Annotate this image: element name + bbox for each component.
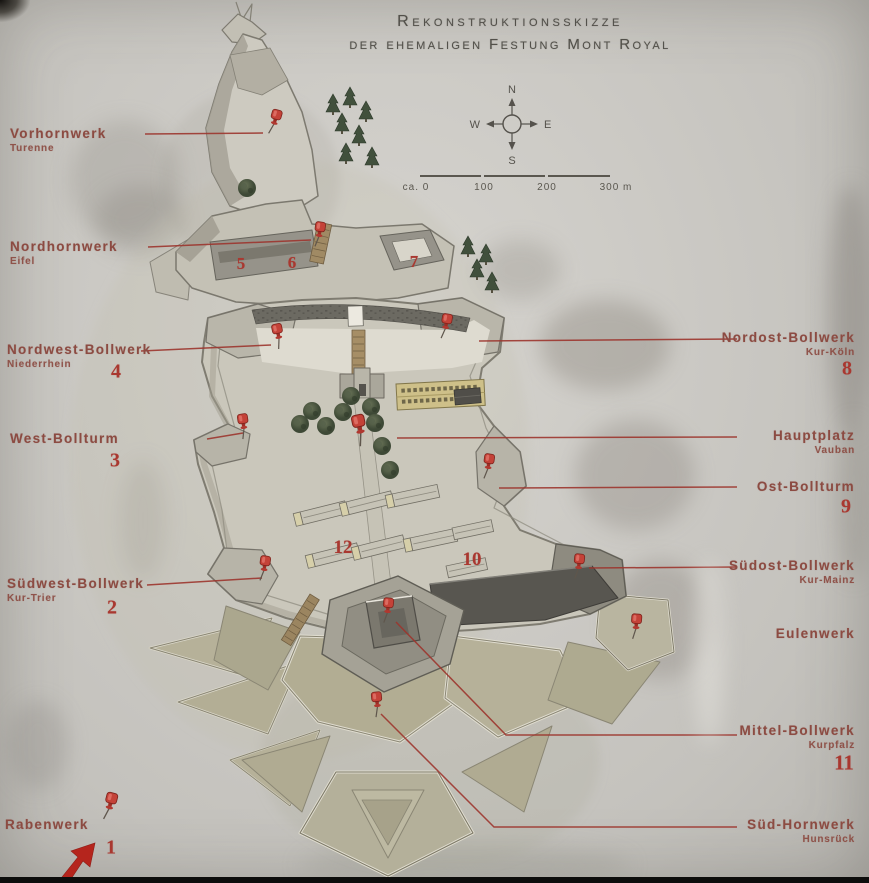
map-number-2: 2	[107, 597, 117, 620]
map-number-3: 3	[110, 450, 120, 473]
leader-line	[499, 487, 737, 488]
label-subtext: Kur-Trier	[7, 593, 144, 606]
label-text: Rabenwerk	[5, 817, 89, 834]
map-number-10: 10	[463, 549, 482, 571]
map-label-nordost-bollwerk: Nordost-BollwerkKur-Köln	[722, 330, 855, 359]
map-label-s-dwest-bollwerk: Südwest-BollwerkKur-Trier	[7, 576, 144, 605]
map-title-line1: Rekonstruktionsskizze	[320, 13, 700, 31]
label-subtext: Turenne	[10, 143, 107, 156]
map-title-line2: der ehemaligen Festung Mont Royal	[320, 36, 700, 53]
map-number-4: 4	[111, 361, 121, 384]
label-subtext: Vauban	[773, 445, 855, 458]
label-subtext: Niederrhein	[7, 359, 151, 372]
map-label-rabenwerk: Rabenwerk	[5, 817, 89, 834]
leader-line	[145, 133, 263, 134]
map-label-nordhornwerk: NordhornwerkEifel	[10, 239, 118, 268]
scale-bar: ca. 0 100 200 300 m	[403, 176, 633, 193]
fortress-map-sign: N S W E ca. 0 100 200 300 m Rekonstrukti…	[0, 0, 869, 883]
photo-glare-band	[694, 560, 724, 745]
map-label-s-dost-bollwerk: Südost-BollwerkKur-Mainz	[729, 558, 855, 587]
label-text: Mittel-Bollwerk	[739, 723, 855, 740]
scale-label-0: ca. 0	[403, 182, 430, 193]
compass-w: W	[470, 119, 481, 131]
leader-line	[479, 339, 737, 341]
scale-label-200: 200	[537, 182, 557, 193]
label-text: Nordhornwerk	[10, 239, 118, 256]
map-label-nordwest-bollwerk: Nordwest-BollwerkNiederrhein	[7, 342, 151, 371]
map-number-5: 5	[237, 254, 246, 274]
map-label-mittel-bollwerk: Mittel-BollwerkKurpfalz	[739, 723, 855, 752]
sign-frame-edge	[0, 877, 869, 883]
map-label-west-bollturm: West-Bollturm	[10, 431, 119, 448]
label-text: Südost-Bollwerk	[729, 558, 855, 575]
label-text: Vorhornwerk	[10, 126, 107, 143]
map-number-9: 9	[841, 496, 851, 519]
location-pin	[101, 792, 118, 821]
label-subtext: Kur-Köln	[722, 347, 855, 360]
map-label-eulenwerk: Eulenwerk	[776, 626, 855, 643]
label-text: West-Bollturm	[10, 431, 119, 448]
scale-label-300: 300 m	[600, 182, 633, 193]
photo-corner-shadow	[0, 0, 30, 22]
compass-e: E	[544, 119, 551, 131]
map-label-hauptplatz: HauptplatzVauban	[773, 428, 855, 457]
label-text: Südwest-Bollwerk	[7, 576, 144, 593]
label-text: Hauptplatz	[773, 428, 855, 445]
map-number-8: 8	[842, 358, 852, 381]
compass-s: S	[508, 155, 515, 167]
label-subtext: Kur-Mainz	[729, 575, 855, 588]
map-label-s-d-hornwerk: Süd-HornwerkHunsrück	[747, 817, 855, 846]
label-subtext: Eifel	[10, 256, 118, 269]
map-label-vorhornwerk: VorhornwerkTurenne	[10, 126, 107, 155]
label-text: Nordwest-Bollwerk	[7, 342, 151, 359]
dark-shed	[454, 388, 481, 405]
map-number-11: 11	[834, 751, 854, 776]
label-text: Ost-Bollturm	[757, 479, 855, 496]
compass-n: N	[508, 84, 516, 96]
map-number-1: 1	[106, 837, 116, 860]
label-subtext: Hunsrück	[747, 834, 855, 847]
map-label-ost-bollturm: Ost-Bollturm	[757, 479, 855, 496]
scale-label-100: 100	[474, 182, 494, 193]
map-number-12: 12	[334, 537, 353, 559]
map-title: Rekonstruktionsskizze der ehemaligen Fes…	[320, 13, 700, 53]
label-text: Süd-Hornwerk	[747, 817, 855, 834]
label-text: Nordost-Bollwerk	[722, 330, 855, 347]
map-number-6: 6	[288, 253, 297, 273]
leader-line	[397, 437, 737, 438]
map-number-7: 7	[410, 252, 419, 272]
compass-rose: N S W E	[470, 84, 552, 167]
label-text: Eulenwerk	[776, 626, 855, 643]
